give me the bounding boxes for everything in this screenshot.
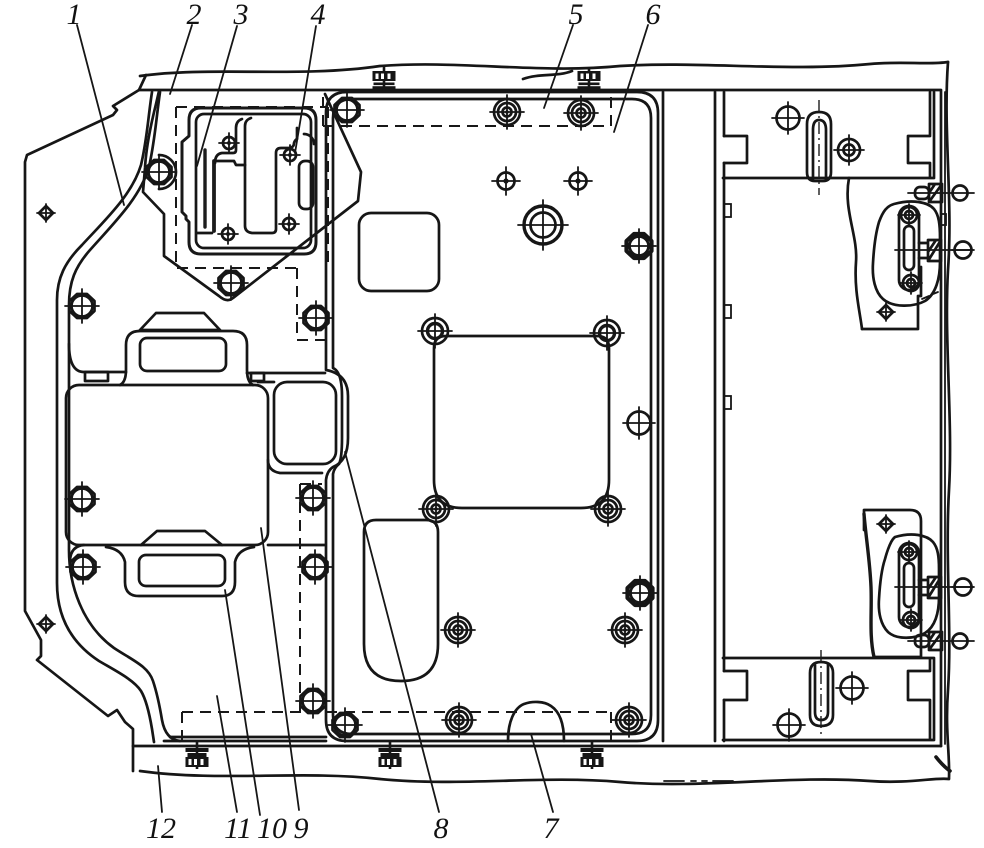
svg-text:9: 9	[294, 812, 309, 845]
svg-text:3: 3	[233, 0, 249, 31]
svg-text:6: 6	[646, 0, 661, 31]
svg-text:1: 1	[67, 0, 82, 31]
svg-text:11: 11	[224, 812, 252, 845]
svg-text:4: 4	[311, 0, 326, 31]
svg-text:5: 5	[569, 0, 584, 31]
svg-text:10: 10	[257, 812, 287, 845]
svg-text:12: 12	[146, 812, 176, 845]
svg-text:8: 8	[434, 812, 449, 845]
svg-text:7: 7	[544, 812, 561, 845]
svg-text:2: 2	[187, 0, 202, 31]
